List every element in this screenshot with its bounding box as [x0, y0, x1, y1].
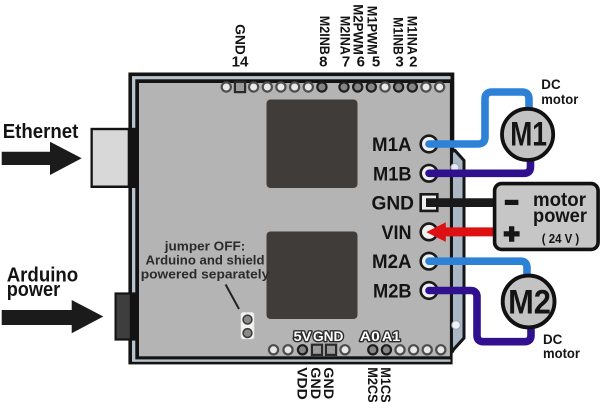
svg-text:M1A: M1A	[372, 134, 412, 156]
svg-text:power: power	[533, 205, 587, 227]
svg-text:GND: GND	[372, 193, 415, 215]
svg-text:M1INB: M1INB	[390, 17, 405, 55]
svg-text:2: 2	[409, 54, 417, 71]
svg-text:M1CS: M1CS	[378, 367, 393, 402]
svg-text:M1: M1	[510, 115, 547, 153]
svg-text:3: 3	[395, 54, 403, 71]
svg-text:M2: M2	[508, 284, 551, 322]
svg-text:power: power	[7, 278, 61, 301]
svg-text:GND: GND	[321, 367, 336, 399]
svg-text:14: 14	[232, 54, 249, 71]
svg-text:( 24 V ): ( 24 V )	[542, 232, 580, 246]
svg-text:5: 5	[372, 54, 380, 71]
svg-text:M2B: M2B	[373, 281, 412, 303]
svg-text:M1PWM: M1PWM	[364, 6, 379, 55]
svg-text:GND: GND	[313, 328, 344, 344]
svg-text:VDD: VDD	[294, 367, 309, 400]
svg-text:7: 7	[342, 54, 350, 71]
svg-text:GND: GND	[308, 367, 323, 399]
svg-text:M2CS: M2CS	[365, 367, 380, 402]
svg-text:Arduino and shield: Arduino and shield	[146, 252, 265, 267]
svg-text:6: 6	[357, 54, 365, 71]
svg-text:powered separately: powered separately	[141, 266, 270, 281]
svg-text:A0: A0	[360, 328, 380, 344]
svg-text:M2INB: M2INB	[317, 16, 332, 55]
svg-text:motor: motor	[543, 346, 581, 361]
svg-text:M2INA: M2INA	[337, 16, 352, 55]
svg-text:M1INA: M1INA	[404, 16, 419, 55]
svg-text:M2A: M2A	[372, 251, 412, 273]
svg-text:motor: motor	[541, 92, 579, 107]
svg-text:M2PWM: M2PWM	[350, 4, 365, 55]
svg-text:GND: GND	[232, 24, 247, 55]
svg-text:VIN: VIN	[382, 222, 412, 244]
svg-text:jumper OFF:: jumper OFF:	[164, 238, 246, 253]
svg-text:5V: 5V	[294, 328, 313, 344]
svg-text:A1: A1	[382, 328, 401, 344]
svg-text:DC: DC	[541, 77, 561, 92]
svg-text:M1B: M1B	[373, 163, 412, 185]
svg-text:Ethernet: Ethernet	[3, 121, 79, 143]
svg-text:8: 8	[319, 54, 327, 71]
